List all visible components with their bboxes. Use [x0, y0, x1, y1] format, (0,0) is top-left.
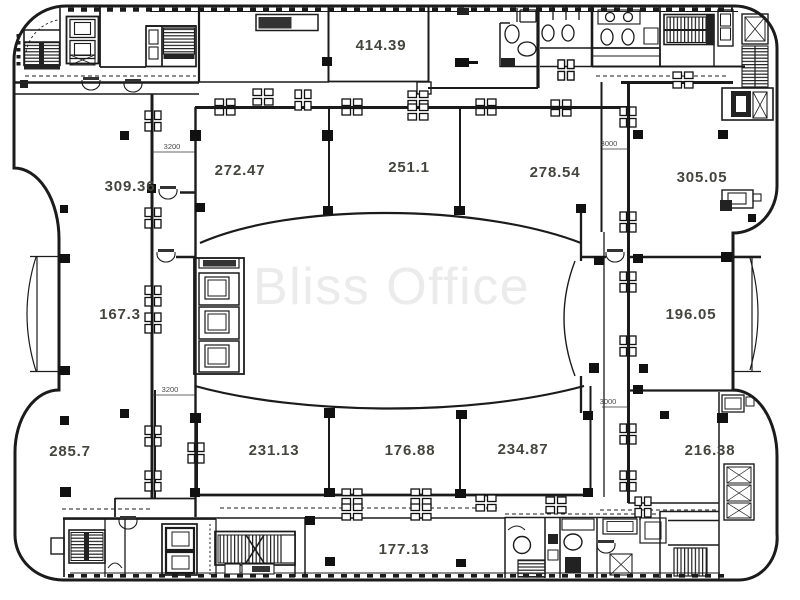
svg-text:305.05: 305.05 — [677, 169, 728, 186]
svg-text:3200: 3200 — [162, 385, 179, 394]
svg-text:216.38: 216.38 — [685, 442, 736, 459]
svg-text:251.1: 251.1 — [388, 159, 430, 176]
svg-text:278.54: 278.54 — [530, 164, 581, 181]
svg-text:177.13: 177.13 — [379, 541, 430, 558]
svg-text:285.7: 285.7 — [49, 443, 91, 460]
svg-text:3000: 3000 — [600, 397, 617, 406]
svg-text:167.3: 167.3 — [99, 306, 141, 323]
svg-text:176.88: 176.88 — [385, 442, 436, 459]
svg-text:234.87: 234.87 — [498, 441, 549, 458]
svg-text:3200: 3200 — [164, 142, 181, 151]
svg-text:309.36: 309.36 — [105, 178, 156, 195]
svg-text:414.39: 414.39 — [356, 37, 407, 54]
svg-text:231.13: 231.13 — [249, 442, 300, 459]
svg-text:3000: 3000 — [601, 139, 618, 148]
svg-text:196.05: 196.05 — [666, 306, 717, 323]
svg-text:Bliss Office: Bliss Office — [253, 258, 530, 316]
svg-text:272.47: 272.47 — [215, 162, 266, 179]
